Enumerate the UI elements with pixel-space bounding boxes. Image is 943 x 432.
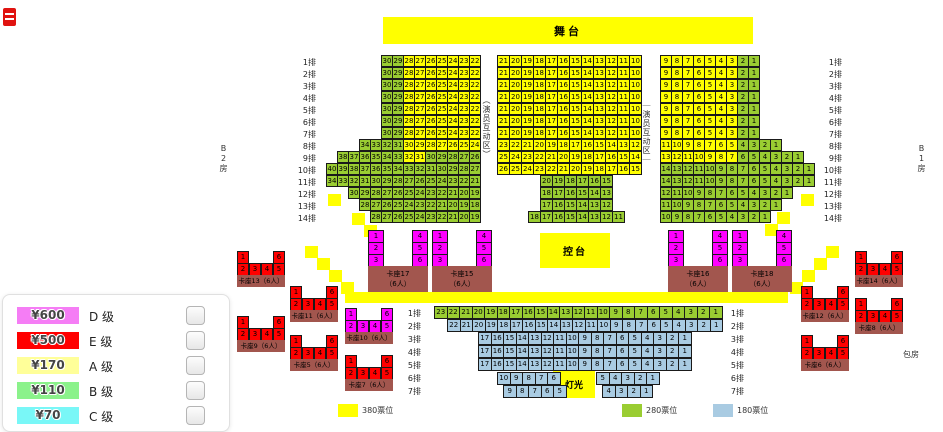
seat-bottom-r1-2[interactable]: 2 [697, 306, 711, 319]
booth-base-label: 卡座5（6人） [290, 359, 338, 371]
row-label: 7排 [294, 129, 316, 140]
seat-bottom-r2-12[interactable]: 12 [572, 319, 586, 332]
row-label: 5排 [399, 360, 421, 371]
seat-bottom-r3-12[interactable]: 12 [541, 332, 555, 345]
seat-left-r11-21[interactable]: 21 [469, 175, 481, 187]
price-swatch: ¥70 [17, 407, 79, 424]
theater-seat-map-page: 舞台 控台 灯光 （演员互动区） ｜演员互动区｜ B2房 B1房 包房 3029… [0, 0, 943, 432]
seat-bottom-r6-5[interactable]: 5 [596, 372, 610, 385]
price-swatch: ¥110 [17, 382, 79, 399]
seat-bottom-r5-2[interactable]: 2 [666, 358, 680, 371]
seat-bottom-r6-8[interactable]: 8 [522, 372, 536, 385]
seat-bottom-r3-6[interactable]: 6 [616, 332, 630, 345]
seat-bottom-r3-4[interactable]: 4 [641, 332, 655, 345]
row-label: 1排 [722, 308, 744, 319]
box-room-label-right-lower: 包房 [903, 349, 919, 360]
seat-bottom-r7-2[interactable]: 2 [627, 385, 641, 398]
seat-bottom-r5-6[interactable]: 6 [616, 358, 630, 371]
seat-bottom-r1-23[interactable]: 23 [434, 306, 448, 319]
seat-bottom-r4-2[interactable]: 2 [666, 345, 680, 358]
seat-bottom-r2-6[interactable]: 6 [647, 319, 661, 332]
seat-bottom-r5-7[interactable]: 7 [603, 358, 617, 371]
seat-bottom-r2-19[interactable]: 19 [485, 319, 499, 332]
seat-bottom-r4-14[interactable]: 14 [516, 345, 530, 358]
seat-bottom-r3-3[interactable]: 3 [653, 332, 667, 345]
seat-bottom-r6-6[interactable]: 6 [547, 372, 561, 385]
row-label: 3排 [399, 334, 421, 345]
tier-label: 280票位 [646, 404, 677, 417]
seat-bottom-r4-4[interactable]: 4 [641, 345, 655, 358]
seat-bottom-r2-5[interactable]: 5 [660, 319, 674, 332]
seat-center-r3-10[interactable]: 10 [629, 79, 642, 91]
price-grade-label: E 级 [89, 333, 112, 350]
seat-bottom-r3-5[interactable]: 5 [628, 332, 642, 345]
seat-right-r14-1[interactable]: 1 [759, 211, 771, 223]
seat-bottom-r3-2[interactable]: 2 [666, 332, 680, 345]
seat-bottom-r2-2[interactable]: 2 [697, 319, 711, 332]
row-label: 7排 [399, 386, 421, 397]
seat-bottom-r1-11[interactable]: 11 [584, 306, 598, 319]
row-label: 5排 [722, 360, 744, 371]
row-label: 11排 [820, 177, 842, 188]
seat-right-r11-1[interactable]: 1 [803, 175, 815, 187]
tier-swatch [622, 404, 642, 417]
row-label: 14排 [294, 213, 316, 224]
row-label: 10排 [294, 165, 316, 176]
seat-bottom-r5-4[interactable]: 4 [641, 358, 655, 371]
seat-center-r6-10[interactable]: 10 [629, 115, 642, 127]
seat-bottom-r4-7[interactable]: 7 [603, 345, 617, 358]
seat-bottom-r4-6[interactable]: 6 [616, 345, 630, 358]
price-grade-label: B 级 [89, 383, 113, 400]
seat-bottom-r1-7[interactable]: 7 [634, 306, 648, 319]
row-label: 5排 [820, 105, 842, 116]
seat-bottom-r3-7[interactable]: 7 [603, 332, 617, 345]
booth-base-label: 卡座10（6人） [345, 332, 393, 344]
stair-tile [814, 258, 827, 270]
seat-bottom-r2-4[interactable]: 4 [672, 319, 686, 332]
seat-center-r1-10[interactable]: 10 [629, 55, 642, 67]
booth-base-label: 卡座15（6人） [432, 266, 492, 292]
seat-right-r8-1[interactable]: 1 [770, 139, 782, 151]
booth-base-label: 卡座6（6人） [801, 359, 849, 371]
row-label: 7排 [722, 386, 744, 397]
booth-base-label: 卡座18（6人） [732, 266, 792, 292]
seat-right-r2-1[interactable]: 1 [748, 67, 760, 79]
row-label: 8排 [820, 141, 842, 152]
row-label: 4排 [399, 347, 421, 358]
seat-bottom-r5-3[interactable]: 3 [653, 358, 667, 371]
seat-bottom-r3-9[interactable]: 9 [578, 332, 592, 345]
seat-left-r5-22[interactable]: 22 [469, 103, 481, 115]
seat-bottom-r2-11[interactable]: 11 [585, 319, 599, 332]
seat-bottom-r5-14[interactable]: 14 [516, 358, 530, 371]
stair-tile [305, 246, 318, 258]
seat-bottom-r5-15[interactable]: 15 [503, 358, 517, 371]
seat-bottom-r1-10[interactable]: 10 [597, 306, 611, 319]
seat-bottom-r7-6[interactable]: 6 [541, 385, 555, 398]
seat-right-r10-1[interactable]: 1 [803, 163, 815, 175]
stair-tile [801, 194, 814, 206]
seat-bottom-r5-11[interactable]: 11 [553, 358, 567, 371]
booth-base-label: 卡座14（6人） [855, 275, 903, 287]
row-label: 2排 [820, 69, 842, 80]
seat-bottom-r1-17[interactable]: 17 [509, 306, 523, 319]
seat-bottom-r1-19[interactable]: 19 [484, 306, 498, 319]
seat-center-r4-10[interactable]: 10 [629, 91, 642, 103]
seat-bottom-r3-8[interactable]: 8 [591, 332, 605, 345]
seat-bottom-r3-14[interactable]: 14 [516, 332, 530, 345]
booth-base-label: 卡座12（6人） [801, 310, 849, 322]
seat-bottom-r2-9[interactable]: 9 [610, 319, 624, 332]
row-label: 13排 [294, 201, 316, 212]
seat-bottom-r5-8[interactable]: 8 [591, 358, 605, 371]
seat-bottom-r2-16[interactable]: 16 [522, 319, 536, 332]
seat-bottom-r7-7[interactable]: 7 [528, 385, 542, 398]
stair-tile [328, 194, 341, 206]
seat-bottom-r4-3[interactable]: 3 [653, 345, 667, 358]
row-label: 7排 [820, 129, 842, 140]
seat-bottom-r1-16[interactable]: 16 [522, 306, 536, 319]
row-label: 6排 [294, 117, 316, 128]
row-label: 6排 [820, 117, 842, 128]
row-label: 3排 [294, 81, 316, 92]
seat-bottom-r4-8[interactable]: 8 [591, 345, 605, 358]
price-swatch: ¥170 [17, 357, 79, 374]
booth-base-label: 卡座7（6人） [345, 379, 393, 391]
seat-bottom-r4-11[interactable]: 11 [553, 345, 567, 358]
seat-bottom-r1-12[interactable]: 12 [572, 306, 586, 319]
row-label: 1排 [399, 308, 421, 319]
box-room-label-left: B2房 [218, 144, 229, 173]
row-label: 2排 [722, 321, 744, 332]
stage: 舞台 [383, 17, 753, 44]
seat-bottom-r1-8[interactable]: 8 [622, 306, 636, 319]
row-label: 1排 [820, 57, 842, 68]
seat-center-r8-12[interactable]: 12 [629, 139, 642, 151]
row-label: 3排 [820, 81, 842, 92]
seat-right-r9-1[interactable]: 1 [792, 151, 804, 163]
seat-right-r1-1[interactable]: 1 [748, 55, 760, 67]
seat-right-r3-1[interactable]: 1 [748, 79, 760, 91]
seat-center-r11-15[interactable]: 15 [600, 175, 613, 187]
seat-right-r12-1[interactable]: 1 [781, 187, 793, 199]
price-filter-checkbox[interactable] [186, 406, 205, 425]
seat-left-r7-22[interactable]: 22 [469, 127, 481, 139]
seat-right-r6-1[interactable]: 1 [748, 115, 760, 127]
booth-base-label: 卡座16（6人） [668, 266, 728, 292]
seat-bottom-r7-8[interactable]: 8 [516, 385, 530, 398]
row-label: 3排 [722, 334, 744, 345]
seat-bottom-r6-1[interactable]: 1 [646, 372, 660, 385]
seat-left-r2-22[interactable]: 22 [469, 67, 481, 79]
seat-left-r3-22[interactable]: 22 [469, 79, 481, 91]
seat-bottom-r4-16[interactable]: 16 [491, 345, 505, 358]
row-label: 1排 [294, 57, 316, 68]
seat-left-r9-26[interactable]: 26 [469, 151, 481, 163]
seat-bottom-r1-15[interactable]: 15 [534, 306, 548, 319]
seat-right-r4-1[interactable]: 1 [748, 91, 760, 103]
seat-bottom-r4-5[interactable]: 5 [628, 345, 642, 358]
control-desk: 控台 [540, 233, 610, 268]
tier-label: 180票位 [737, 404, 768, 417]
row-label: 12排 [294, 189, 316, 200]
seat-bottom-r2-22[interactable]: 22 [447, 319, 461, 332]
seat-bottom-r1-9[interactable]: 9 [609, 306, 623, 319]
seat-left-r10-27[interactable]: 27 [469, 163, 481, 175]
seat-left-r4-22[interactable]: 22 [469, 91, 481, 103]
seat-center-r14-11[interactable]: 11 [612, 211, 625, 223]
seat-bottom-r7-5[interactable]: 5 [553, 385, 567, 398]
row-label: 6排 [722, 373, 744, 384]
price-grade-label: A 级 [89, 358, 113, 375]
row-label: 12排 [820, 189, 842, 200]
booth-base-label: 卡座11（6人） [290, 310, 338, 322]
seat-center-r7-10[interactable]: 10 [629, 127, 642, 139]
seat-left-r12-19[interactable]: 19 [469, 187, 481, 199]
seat-bottom-r1-18[interactable]: 18 [497, 306, 511, 319]
seat-bottom-r4-17[interactable]: 17 [478, 345, 492, 358]
seat-bottom-r3-10[interactable]: 10 [566, 332, 580, 345]
stair-tile [341, 282, 354, 294]
seat-bottom-r4-10[interactable]: 10 [566, 345, 580, 358]
walkway-bar [345, 292, 788, 303]
seat-bottom-r2-3[interactable]: 3 [685, 319, 699, 332]
seat-center-r2-10[interactable]: 10 [629, 67, 642, 79]
row-label: 11排 [294, 177, 316, 188]
seat-center-r13-12[interactable]: 12 [600, 199, 613, 211]
seat-bottom-r3-1[interactable]: 1 [678, 332, 692, 345]
seat-bottom-r2-7[interactable]: 7 [635, 319, 649, 332]
seat-bottom-r6-2[interactable]: 2 [634, 372, 648, 385]
seat-bottom-r7-4[interactable]: 4 [602, 385, 616, 398]
seat-bottom-r3-11[interactable]: 11 [553, 332, 567, 345]
price-grade-label: C 级 [89, 408, 113, 425]
seat-bottom-r5-1[interactable]: 1 [678, 358, 692, 371]
booth-base-label: 卡座9（6人） [237, 340, 285, 352]
seat-bottom-r2-15[interactable]: 15 [535, 319, 549, 332]
seat-bottom-r5-5[interactable]: 5 [628, 358, 642, 371]
row-label: 9排 [820, 153, 842, 164]
seat-bottom-r3-13[interactable]: 13 [528, 332, 542, 345]
seat-bottom-r5-12[interactable]: 12 [541, 358, 555, 371]
seat-bottom-r6-4[interactable]: 4 [609, 372, 623, 385]
seat-bottom-r4-13[interactable]: 13 [528, 345, 542, 358]
row-label: 6排 [399, 373, 421, 384]
tier-swatch [338, 404, 358, 417]
stair-tile [317, 258, 330, 270]
stair-tile [352, 213, 365, 225]
seat-bottom-r2-8[interactable]: 8 [622, 319, 636, 332]
seat-right-r7-1[interactable]: 1 [748, 127, 760, 139]
seat-bottom-r7-3[interactable]: 3 [615, 385, 629, 398]
seat-bottom-r1-13[interactable]: 13 [559, 306, 573, 319]
row-label: 14排 [820, 213, 842, 224]
price-legend-panel: ¥600D 级¥500E 级¥170A 级¥110B 级¥70C 级 [2, 294, 230, 432]
seat-center-r10-15[interactable]: 15 [629, 163, 642, 175]
seat-left-r14-19[interactable]: 19 [469, 211, 481, 223]
seat-center-r9-14[interactable]: 14 [629, 151, 642, 163]
price-grade-label: D 级 [89, 308, 114, 325]
tier-label: 380票位 [362, 404, 393, 417]
stair-tile [802, 270, 815, 282]
booth-base-label: 卡座8（6人） [855, 322, 903, 334]
row-label: 4排 [722, 347, 744, 358]
seat-bottom-r2-20[interactable]: 20 [472, 319, 486, 332]
seat-center-r12-13[interactable]: 13 [600, 187, 613, 199]
stair-tile [777, 212, 790, 224]
seat-left-r6-22[interactable]: 22 [469, 115, 481, 127]
seat-bottom-r5-9[interactable]: 9 [578, 358, 592, 371]
seat-bottom-r2-10[interactable]: 10 [597, 319, 611, 332]
seat-bottom-r1-1[interactable]: 1 [709, 306, 723, 319]
seat-bottom-r5-13[interactable]: 13 [528, 358, 542, 371]
seat-bottom-r4-1[interactable]: 1 [678, 345, 692, 358]
booth-base-label: 卡座17（6人） [368, 266, 428, 292]
seat-bottom-r1-6[interactable]: 6 [647, 306, 661, 319]
zone-label-left: （演员互动区） [481, 96, 492, 159]
seat-bottom-r1-20[interactable]: 20 [472, 306, 486, 319]
seat-bottom-r2-13[interactable]: 13 [560, 319, 574, 332]
seat-bottom-r6-7[interactable]: 7 [535, 372, 549, 385]
seat-bottom-r6-10[interactable]: 10 [497, 372, 511, 385]
seat-bottom-r7-1[interactable]: 1 [640, 385, 654, 398]
seat-left-r1-22[interactable]: 22 [469, 55, 481, 67]
seat-center-r5-10[interactable]: 10 [629, 103, 642, 115]
price-filter-checkbox[interactable] [186, 331, 205, 350]
row-label: 4排 [294, 93, 316, 104]
logo-mark-icon [3, 8, 16, 26]
seat-bottom-r2-14[interactable]: 14 [547, 319, 561, 332]
seat-left-r13-18[interactable]: 18 [469, 199, 481, 211]
seat-bottom-r1-22[interactable]: 22 [447, 306, 461, 319]
booth-base-label: 卡座13（6人） [237, 275, 285, 287]
row-label: 13排 [820, 201, 842, 212]
box-room-label-right: B1房 [916, 144, 927, 173]
row-label: 2排 [399, 321, 421, 332]
seat-bottom-r4-12[interactable]: 12 [541, 345, 555, 358]
seat-bottom-r3-15[interactable]: 15 [503, 332, 517, 345]
seat-bottom-r3-17[interactable]: 17 [478, 332, 492, 345]
price-swatch: ¥500 [17, 332, 79, 349]
seat-left-r8-24[interactable]: 24 [469, 139, 481, 151]
seat-bottom-r2-1[interactable]: 1 [710, 319, 724, 332]
seat-bottom-r1-4[interactable]: 4 [672, 306, 686, 319]
seat-bottom-r7-9[interactable]: 9 [503, 385, 517, 398]
seat-bottom-r2-21[interactable]: 21 [460, 319, 474, 332]
seat-bottom-r1-21[interactable]: 21 [459, 306, 473, 319]
seat-bottom-r6-3[interactable]: 3 [621, 372, 635, 385]
row-label: 8排 [294, 141, 316, 152]
row-label: 2排 [294, 69, 316, 80]
row-label: 9排 [294, 153, 316, 164]
price-filter-checkbox[interactable] [186, 381, 205, 400]
price-filter-checkbox[interactable] [186, 306, 205, 325]
zone-label-right: ｜演员互动区｜ [641, 101, 652, 164]
seat-bottom-r4-15[interactable]: 15 [503, 345, 517, 358]
stair-tile [826, 246, 839, 258]
tier-swatch [713, 404, 733, 417]
row-label: 4排 [820, 93, 842, 104]
seat-right-r13-1[interactable]: 1 [770, 199, 782, 211]
row-label: 10排 [820, 165, 842, 176]
seat-bottom-r1-3[interactable]: 3 [684, 306, 698, 319]
price-filter-checkbox[interactable] [186, 356, 205, 375]
seat-bottom-r5-16[interactable]: 16 [491, 358, 505, 371]
seat-bottom-r3-16[interactable]: 16 [491, 332, 505, 345]
seat-bottom-r2-17[interactable]: 17 [510, 319, 524, 332]
seat-bottom-r4-9[interactable]: 9 [578, 345, 592, 358]
row-label: 5排 [294, 105, 316, 116]
seat-bottom-r2-18[interactable]: 18 [497, 319, 511, 332]
seat-bottom-r5-10[interactable]: 10 [566, 358, 580, 371]
seat-bottom-r1-14[interactable]: 14 [547, 306, 561, 319]
seat-bottom-r5-17[interactable]: 17 [478, 358, 492, 371]
seat-right-r5-1[interactable]: 1 [748, 103, 760, 115]
price-swatch: ¥600 [17, 307, 79, 324]
seat-bottom-r6-9[interactable]: 9 [510, 372, 524, 385]
seat-bottom-r1-5[interactable]: 5 [659, 306, 673, 319]
stair-tile [329, 270, 342, 282]
